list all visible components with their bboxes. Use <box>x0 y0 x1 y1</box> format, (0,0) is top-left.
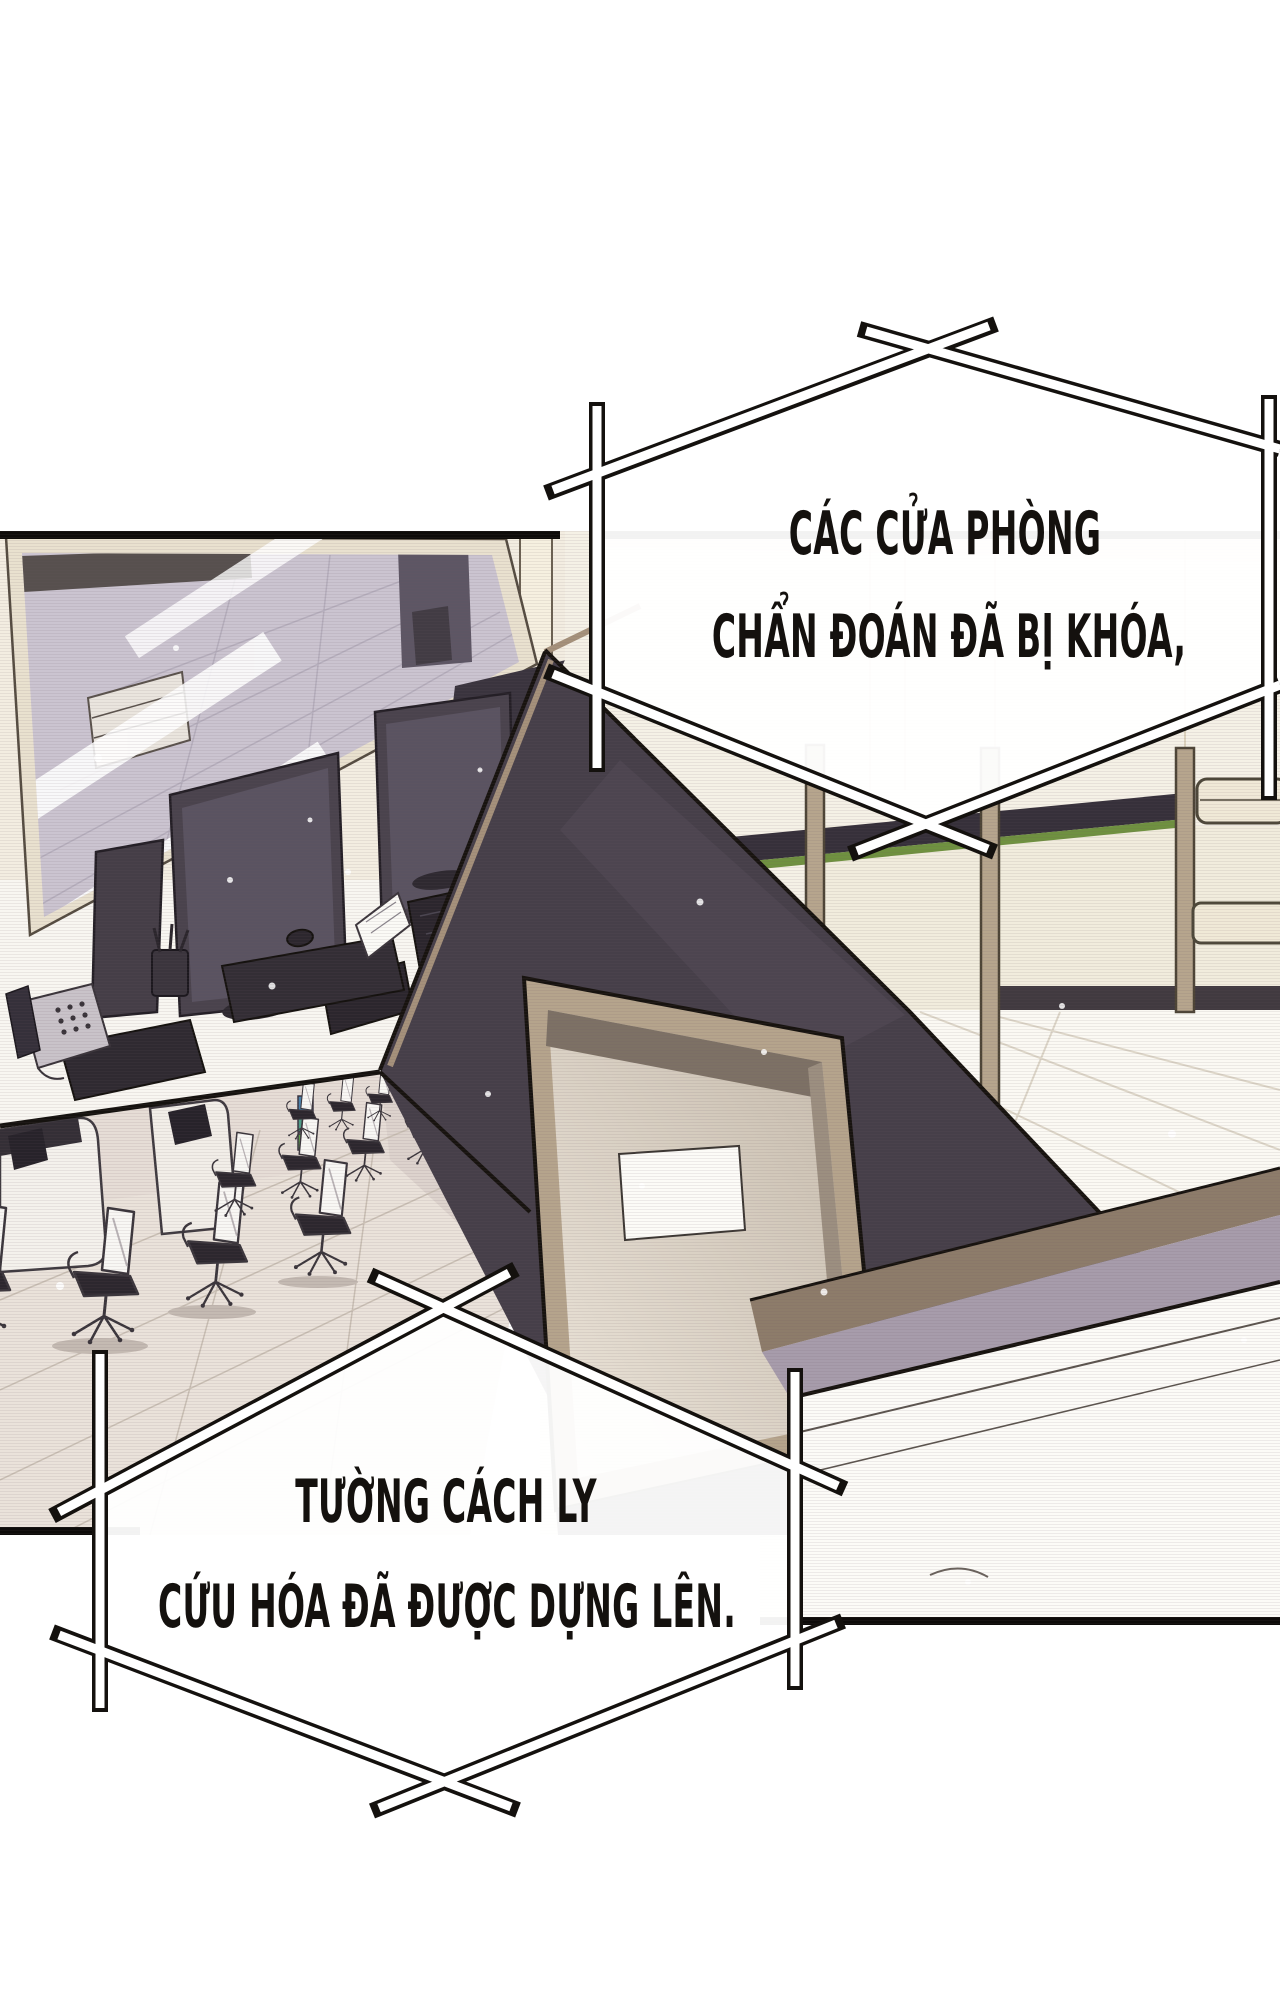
caption-top-line1: CÁC CỬA PHÒNG <box>789 499 1101 569</box>
caption-bottom-line1: TƯỜNG CÁCH LY <box>295 1467 597 1537</box>
caption-top-line2: CHẨN ĐOÁN ĐÃ BỊ KHÓA, <box>712 602 1186 672</box>
webtoon-page: CÁC CỬA PHÒNG CHẨN ĐOÁN ĐÃ BỊ KHÓA, TƯỜN… <box>0 0 1280 2011</box>
artwork-panel <box>0 0 1280 2011</box>
caption-bottom-line2: CỨU HÓA ĐÃ ĐƯỢC DỰNG LÊN. <box>158 1572 736 1642</box>
